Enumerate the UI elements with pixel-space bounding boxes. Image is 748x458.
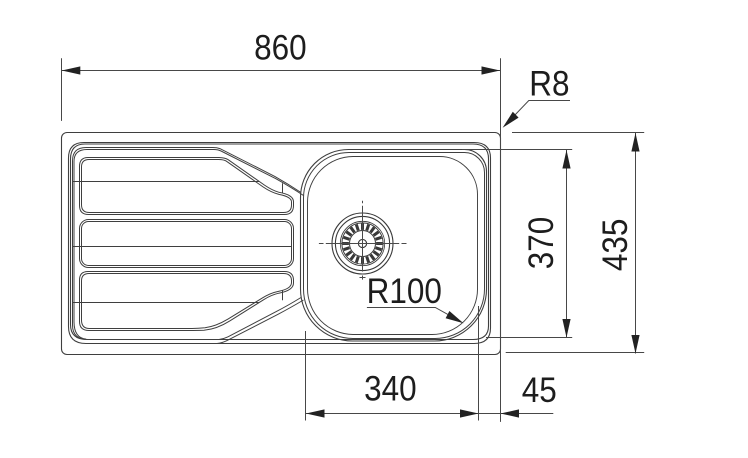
svg-text:R8: R8 bbox=[529, 65, 569, 104]
svg-text:R100: R100 bbox=[367, 273, 442, 312]
svg-text:370: 370 bbox=[522, 217, 561, 270]
svg-text:860: 860 bbox=[254, 29, 307, 68]
svg-text:435: 435 bbox=[597, 219, 636, 272]
svg-text:45: 45 bbox=[522, 372, 557, 411]
svg-text:340: 340 bbox=[364, 370, 417, 409]
